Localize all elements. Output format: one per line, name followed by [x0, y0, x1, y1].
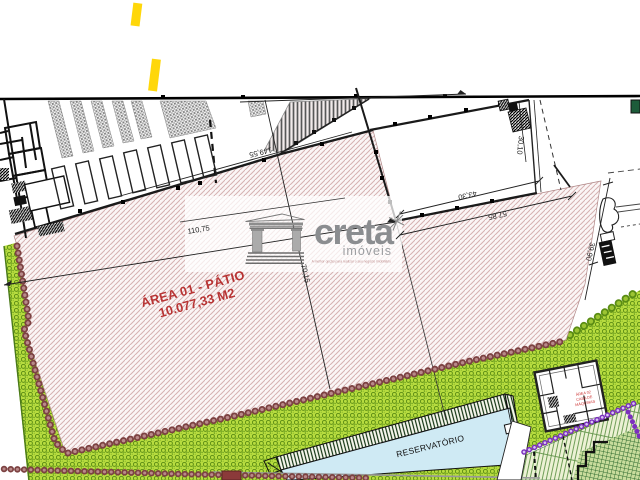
svg-text:imóveis: imóveis	[343, 244, 392, 258]
svg-text:A melhor opção para realizar o: A melhor opção para realizar o seu negóc…	[312, 260, 392, 264]
